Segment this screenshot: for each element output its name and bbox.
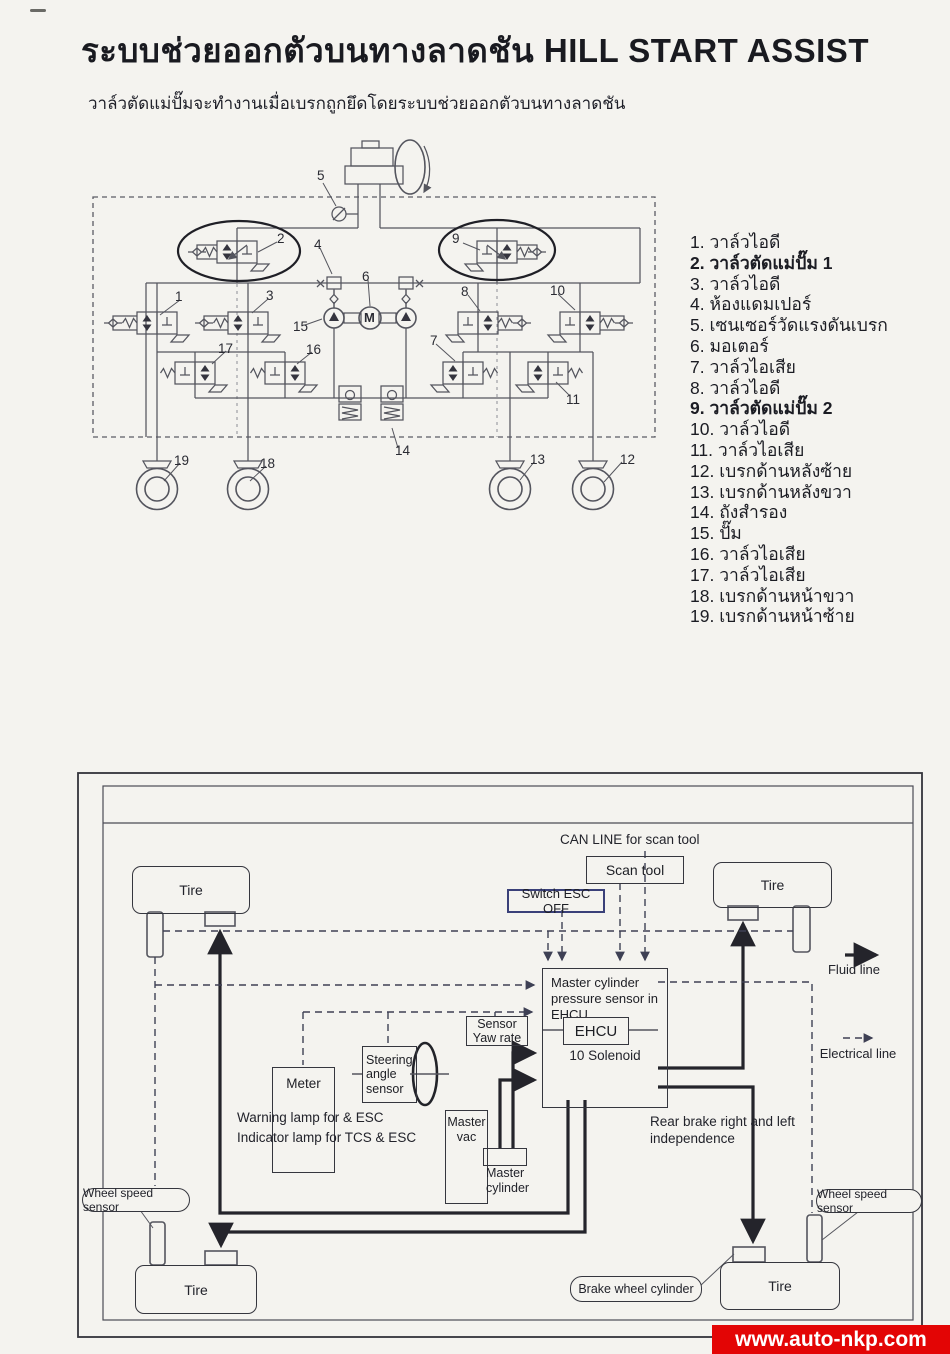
legend-item-6: 6. มอเตอร์ <box>690 336 940 357</box>
master-cylinder-label: Master cylinder <box>486 1166 544 1195</box>
legend-item-14: 14. ถังสำรอง <box>690 502 940 523</box>
page-subtitle: วาล์วตัดแม่ปั๊มจะทำงานเมื่อเบรกถูกยึดโดย… <box>88 90 868 117</box>
callout-9: 9 <box>452 231 460 246</box>
callout-4: 4 <box>314 237 322 252</box>
brake-wheel-cylinder-pill: Brake wheel cylinder <box>570 1276 702 1302</box>
can-line-label: CAN LINE for scan tool <box>560 832 720 847</box>
callout-3: 3 <box>266 288 274 303</box>
scanned-page: ระบบช่วยออกตัวบนทางลาดชัน HILL START ASS… <box>0 0 950 1354</box>
tire-top-left-box: Tire <box>132 866 250 914</box>
legend-item-16: 16. วาล์วไอเสีย <box>690 544 940 565</box>
legend-item-7: 7. วาล์วไอเสีย <box>690 357 940 378</box>
legend-item-8: 8. วาล์วไอดี <box>690 378 940 399</box>
legend-item-9: 9. วาล์วตัดแม่ปั๊ม 2 <box>690 398 940 419</box>
legend-item-3: 3. วาล์วไอดี <box>690 274 940 295</box>
callout-14: 14 <box>395 443 410 458</box>
legend-item-10: 10. วาล์วไอดี <box>690 419 940 440</box>
legend-item-13: 13. เบรกด้านหลังขวา <box>690 482 940 503</box>
callout-10: 10 <box>550 283 565 298</box>
legend-item-12: 12. เบรกด้านหลังซ้าย <box>690 461 940 482</box>
callout-8: 8 <box>461 284 469 299</box>
master-cylinder-shape <box>483 1148 527 1166</box>
switch-esc-off-box: Switch ESC OFF <box>507 889 605 913</box>
callout-2: 2 <box>277 231 285 246</box>
watermark: www.auto-nkp.com <box>712 1325 950 1354</box>
legend-item-18: 18. เบรกด้านหน้าขวา <box>690 586 940 607</box>
callout-12: 12 <box>620 452 635 467</box>
callout-1: 1 <box>175 289 183 304</box>
legend-item-11: 11. วาล์วไอเสีย <box>690 440 940 461</box>
scan-artifact-mark <box>30 9 46 12</box>
legend-item-19: 19. เบรกด้านหน้าซ้าย <box>690 606 940 627</box>
wheel-speed-sensor-left-pill: Wheel speed sensor <box>82 1188 190 1212</box>
electrical-line-legend: Electrical line <box>818 1046 898 1061</box>
wheel-speed-sensor-right-pill: Wheel speed sensor <box>816 1189 922 1213</box>
legend-item-17: 17. วาล์วไอเสีย <box>690 565 940 586</box>
ehcu-inner-box: EHCU <box>563 1017 629 1045</box>
rear-brake-note: Rear brake right and left independence <box>650 1113 795 1147</box>
callout-15: 15 <box>293 319 308 334</box>
tire-bottom-left-box: Tire <box>135 1265 257 1314</box>
legend-item-15: 15. ปั๊ม <box>690 523 940 544</box>
callout-17: 17 <box>218 341 233 356</box>
callout-6: 6 <box>362 269 370 284</box>
callout-18: 18 <box>260 456 275 471</box>
warning-lamp-note: Warning lamp for & ESC <box>237 1110 457 1125</box>
tire-top-right-box: Tire <box>713 862 832 908</box>
scan-tool-box: Scan tool <box>586 856 684 884</box>
motor-label: M <box>364 310 375 325</box>
callout-7: 7 <box>430 333 438 348</box>
steering-angle-sensor-box: Steering angle sensor <box>362 1046 417 1103</box>
callout-16: 16 <box>306 342 321 357</box>
master-vac-box: Master vac <box>445 1110 488 1204</box>
legend-item-1: 1. วาล์วไอดี <box>690 232 940 253</box>
legend-item-5: 5. เซนเซอร์วัดแรงดันเบรก <box>690 315 940 336</box>
yaw-rate-sensor-box: Sensor Yaw rate <box>466 1016 528 1046</box>
legend-item-2: 2. วาล์วตัดแม่ปั๊ม 1 <box>690 253 940 274</box>
tire-bottom-right-box: Tire <box>720 1262 840 1310</box>
legend-item-4: 4. ห้องแดมเปอร์ <box>690 294 940 315</box>
indicator-lamp-note: Indicator lamp for TCS & ESC <box>237 1130 457 1145</box>
callout-5: 5 <box>317 168 325 183</box>
solenoid-label: 10 Solenoid <box>552 1048 658 1063</box>
callout-19: 19 <box>174 453 189 468</box>
callout-11: 11 <box>566 392 580 407</box>
fluid-line-legend: Fluid line <box>826 962 882 977</box>
callout-13: 13 <box>530 452 545 467</box>
page-title: ระบบช่วยออกตัวบนทางลาดชัน HILL START ASS… <box>0 24 950 77</box>
